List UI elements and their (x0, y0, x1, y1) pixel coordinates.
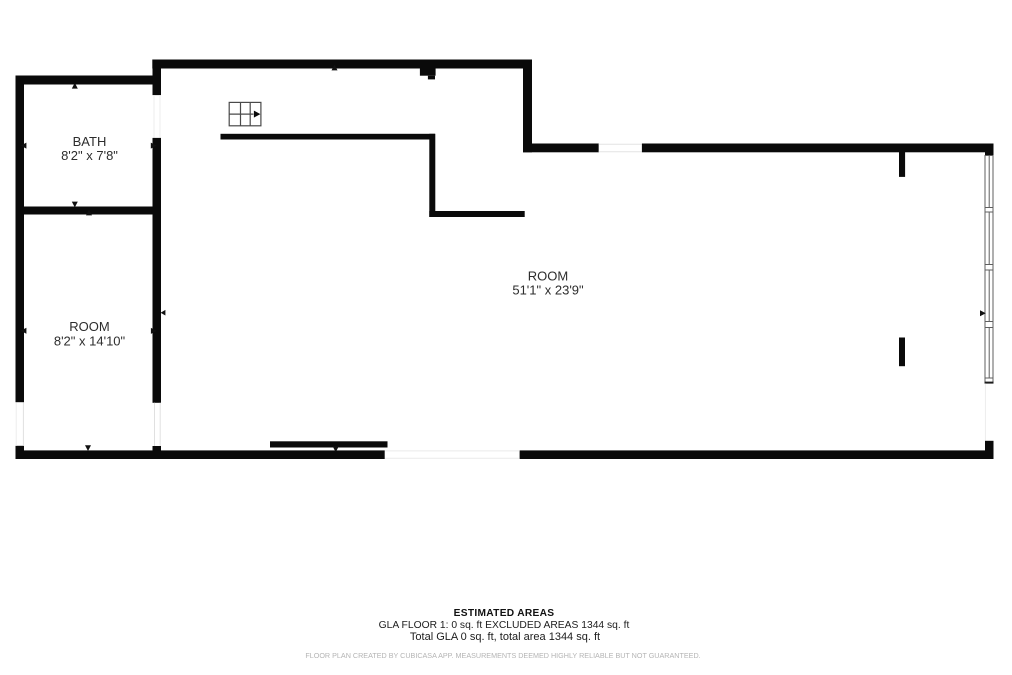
svg-text:ROOM: ROOM (528, 269, 568, 284)
svg-text:Total GLA 0 sq. ft, total area: Total GLA 0 sq. ft, total area 1344 sq. … (410, 631, 600, 643)
svg-text:GLA FLOOR 1: 0 sq. ft EXCLUDED: GLA FLOOR 1: 0 sq. ft EXCLUDED AREAS 134… (379, 620, 630, 631)
svg-text:BATH: BATH (73, 134, 107, 149)
svg-text:51'1" x 23'9": 51'1" x 23'9" (512, 283, 584, 298)
svg-text:FLOOR PLAN CREATED BY CUBICASA: FLOOR PLAN CREATED BY CUBICASA APP. MEAS… (305, 651, 700, 660)
svg-text:8'2" x 7'8": 8'2" x 7'8" (61, 148, 118, 163)
svg-text:ESTIMATED AREAS: ESTIMATED AREAS (454, 608, 555, 619)
svg-text:8'2" x 14'10": 8'2" x 14'10" (54, 333, 126, 348)
svg-text:ROOM: ROOM (69, 319, 109, 334)
